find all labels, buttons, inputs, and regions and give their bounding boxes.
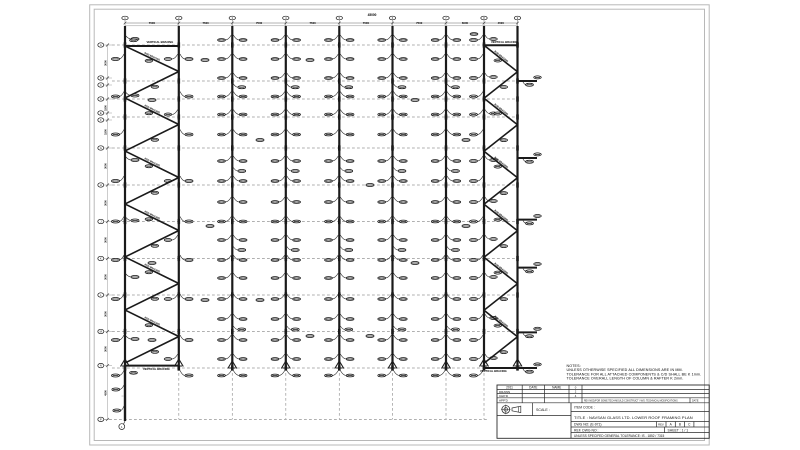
svg-text:F: F xyxy=(100,118,102,122)
svg-text:7500: 7500 xyxy=(363,21,370,25)
svg-text:REF. DWG NO :: REF. DWG NO : xyxy=(574,428,599,432)
svg-text:1500: 1500 xyxy=(103,105,107,111)
svg-text:7500: 7500 xyxy=(416,21,423,25)
svg-text:VERTICAL BRACING: VERTICAL BRACING xyxy=(480,369,507,373)
svg-text:7500: 7500 xyxy=(256,21,263,25)
svg-text:45000: 45000 xyxy=(368,13,377,17)
svg-text:CHK'D: CHK'D xyxy=(499,394,509,398)
svg-text:NAME: NAME xyxy=(552,386,561,390)
svg-text:N: N xyxy=(100,364,102,368)
svg-text:REV.: REV. xyxy=(658,423,664,427)
svg-text:3000: 3000 xyxy=(103,200,107,206)
svg-text:3000: 3000 xyxy=(103,274,107,280)
svg-text:P: P xyxy=(100,418,102,422)
svg-text:3000: 3000 xyxy=(103,311,107,317)
svg-text:SHEET : 1 / 1: SHEET : 1 / 1 xyxy=(668,428,689,432)
svg-text:7500: 7500 xyxy=(149,21,156,25)
svg-text:VERTICAL BRACING: VERTICAL BRACING xyxy=(491,40,518,44)
svg-text:TOLERANCE OVERALL LENGTH OF CO: TOLERANCE OVERALL LENGTH OF COLUMN & RAF… xyxy=(567,377,684,381)
svg-text:DWG NO: (E-971): DWG NO: (E-971) xyxy=(574,423,602,427)
svg-text:3000: 3000 xyxy=(103,60,107,66)
svg-text:UNLESS SPECIFED GENERAL TOLERA: UNLESS SPECIFED GENERAL TOLERANCE: IS - … xyxy=(574,434,665,438)
svg-text:TITLE : NAVSAN GLASS LTD.: TITLE : NAVSAN GLASS LTD. LOWER ROOF FRA… xyxy=(574,415,693,420)
svg-text:REV MOD/FOR SOME TECH-MOULD: REV MOD/FOR SOME TECH-MOULD CONSTRUCT / … xyxy=(584,399,678,402)
svg-text:4500: 4500 xyxy=(103,390,107,396)
svg-text:APP'D: APP'D xyxy=(499,398,509,402)
svg-text:7500: 7500 xyxy=(202,21,209,25)
svg-text:SCALE :: SCALE : xyxy=(536,408,550,412)
svg-text:VERTICAL BRACING: VERTICAL BRACING xyxy=(147,40,174,44)
svg-text:G: G xyxy=(100,146,102,150)
svg-text:VERTICAL BRACING: VERTICAL BRACING xyxy=(143,367,170,371)
svg-text:3000: 3000 xyxy=(103,346,107,352)
svg-text:3000: 3000 xyxy=(103,237,107,243)
svg-text:B: B xyxy=(679,423,681,427)
svg-text:C: C xyxy=(100,83,102,87)
svg-text:B: B xyxy=(100,76,102,80)
svg-text:1500: 1500 xyxy=(103,129,107,135)
svg-text:K: K xyxy=(100,257,102,261)
svg-text:3000: 3000 xyxy=(103,163,107,169)
svg-text:6000: 6000 xyxy=(462,21,469,25)
svg-text:A: A xyxy=(100,43,102,47)
svg-text:DATE: DATE xyxy=(692,399,699,402)
svg-text:H: H xyxy=(100,183,102,187)
svg-text:DATE: DATE xyxy=(529,386,537,390)
svg-text:4500: 4500 xyxy=(498,21,505,25)
svg-text:ITEM CODE :: ITEM CODE : xyxy=(574,405,595,409)
svg-text:D: D xyxy=(100,97,102,101)
svg-text:E: E xyxy=(100,111,102,115)
svg-text:7500: 7500 xyxy=(309,21,316,25)
